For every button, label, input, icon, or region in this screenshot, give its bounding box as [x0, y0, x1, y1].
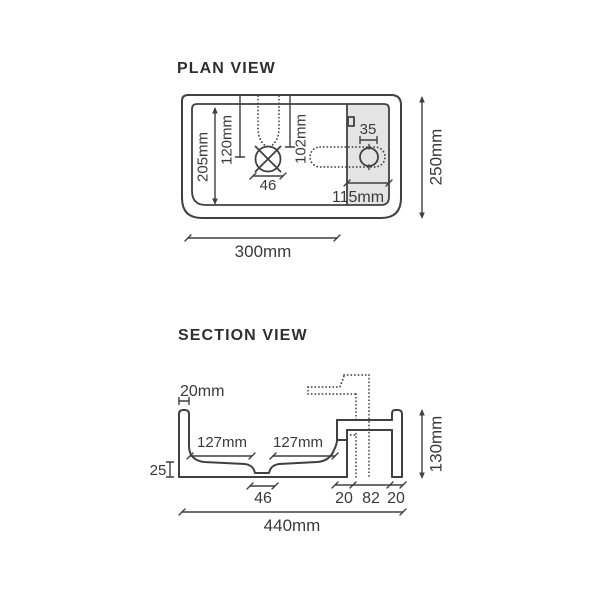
dim-bowl-width-label: 300mm [235, 242, 292, 261]
dim-step-width-label: 20 [335, 490, 353, 507]
dim-overall-height: 130mm [419, 409, 445, 479]
dim-drain-width-section: 46 [247, 483, 278, 507]
plan-view: PLAN VIEW [177, 60, 446, 261]
dim-back-wall-width-label: 20 [387, 490, 405, 507]
dim-bowl-left-half: 127mm [187, 434, 255, 459]
technical-drawing-canvas: PLAN VIEW [0, 0, 600, 600]
dim-drain-width-section-label: 46 [254, 490, 272, 507]
dim-bowl-left-half-label: 127mm [197, 434, 247, 451]
plan-view-title: PLAN VIEW [177, 60, 276, 77]
dim-bowl-width: 300mm [185, 235, 340, 261]
dim-drain-width-plan-label: 46 [260, 177, 277, 194]
dim-drain-offset-left-label: 120mm [219, 115, 236, 165]
dim-drain-offset-right: 102mm [286, 96, 310, 164]
dim-overall-depth: 250mm [419, 96, 445, 219]
dim-overall-depth-label: 250mm [427, 129, 446, 186]
dim-void-width-label: 82 [362, 490, 380, 507]
dim-wall-thickness-label: 20mm [180, 383, 224, 400]
dim-drain-width-plan: 46 [250, 173, 286, 194]
dim-base-thickness: 25 [150, 462, 174, 479]
dim-inner-depth: 205mm [195, 107, 218, 205]
dim-tap-hole-label: 35 [360, 121, 377, 138]
basin-drawing: PLAN VIEW [0, 0, 600, 600]
dim-bowl-right-half-label: 127mm [273, 434, 323, 451]
drain-icon [255, 146, 281, 172]
dim-drain-offset-right-label: 102mm [293, 114, 310, 164]
dim-rear-segments: 20 82 20 [332, 482, 406, 507]
dim-wall-thickness: 20mm [179, 383, 224, 405]
dim-overall-height-label: 130mm [427, 416, 446, 473]
dim-inner-depth-label: 205mm [195, 132, 212, 182]
dim-drain-offset-left: 120mm [219, 96, 245, 165]
dim-tap-hole: 35 [360, 121, 377, 144]
dim-base-thickness-label: 25 [150, 462, 167, 479]
dim-overall-width-label: 440mm [264, 516, 321, 535]
dim-bowl-right-half: 127mm [270, 434, 338, 459]
dim-deck-width-label: 115mm [332, 189, 384, 206]
section-view: SECTION VIEW 20mm [150, 327, 446, 535]
section-view-title: SECTION VIEW [178, 327, 308, 344]
dim-overall-width: 440mm [179, 509, 406, 535]
